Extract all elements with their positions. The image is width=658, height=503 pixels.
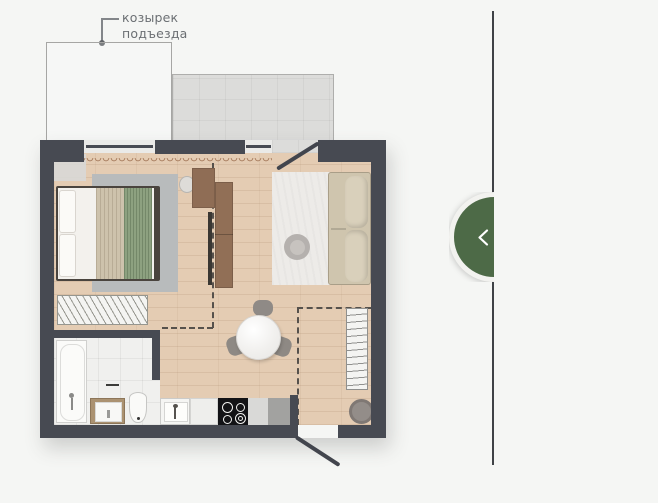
bathroom-wall-top	[40, 330, 160, 338]
sofa-seat-seam	[331, 228, 346, 230]
burner-inner-ring	[238, 416, 243, 421]
dining-table	[236, 315, 281, 360]
wall-bottom-left	[40, 425, 298, 438]
bed	[56, 186, 160, 281]
living-rug	[272, 172, 330, 285]
toilet	[129, 392, 147, 423]
bed-blanket-green	[124, 188, 152, 279]
wardrobe	[215, 182, 233, 288]
kitchen-counter-end	[248, 398, 268, 425]
sink-vanity	[90, 398, 125, 424]
leader-line-vertical	[101, 18, 103, 42]
wall-left	[40, 140, 54, 438]
kitchen-faucet	[174, 407, 176, 419]
zone-dashed-line-bedroom-horizontal	[162, 327, 213, 329]
hall-closet-shelves	[346, 308, 368, 390]
sofa	[328, 172, 371, 285]
sofa-back-cushion	[345, 176, 368, 228]
canopy-label-line2: подъезда	[122, 26, 188, 42]
wall-trim-left	[54, 158, 272, 166]
wall-bottom-right	[338, 425, 386, 438]
canopy-label-line1: козырек	[122, 10, 188, 26]
kitchen-counter	[190, 398, 218, 425]
leader-line-horizontal	[101, 18, 119, 20]
window-bay-bedroom	[84, 140, 155, 153]
dining-chair	[253, 300, 273, 316]
burner	[236, 403, 245, 412]
sofa-back-cushion	[345, 230, 368, 282]
chevron-left-icon[interactable]	[476, 228, 490, 247]
towel-rail	[106, 384, 119, 386]
kitchen-sink-cabinet	[160, 398, 190, 425]
bed-pillow	[59, 190, 76, 233]
bed-blanket-tan	[96, 188, 124, 279]
bedroom-dresser	[57, 295, 148, 325]
wall-right	[371, 140, 386, 438]
window-bay-living	[245, 140, 272, 153]
bathtub	[56, 340, 87, 423]
kitchen-faucet-head	[173, 404, 178, 408]
floorplan-viewer: козырек подъезда	[0, 0, 658, 503]
bathtub-faucet-stem	[71, 398, 73, 410]
tv	[208, 212, 212, 285]
bathtub-inner	[60, 344, 85, 421]
floor-plan	[40, 140, 386, 438]
wall-top-middle	[155, 140, 245, 154]
bed-pillow	[59, 234, 76, 277]
bathroom-wall-right	[152, 330, 160, 380]
wardrobe-seam	[215, 234, 233, 235]
burner	[222, 402, 233, 413]
toilet-flush-dot	[137, 417, 140, 420]
side-table-decor	[290, 240, 305, 255]
entry-cabinet	[268, 398, 290, 425]
balcony	[172, 74, 334, 143]
burner-double	[235, 413, 246, 424]
window-glazing	[246, 145, 271, 148]
window-glazing	[86, 145, 153, 148]
desk	[192, 168, 215, 208]
vanity-faucet	[107, 410, 110, 418]
canopy-label: козырек подъезда	[122, 10, 188, 43]
entrance-canopy-outline	[46, 42, 172, 143]
entry-door-jamb	[290, 395, 298, 427]
entrance-door-leaf	[295, 435, 341, 466]
cooktop	[218, 398, 248, 426]
burner	[223, 415, 232, 424]
